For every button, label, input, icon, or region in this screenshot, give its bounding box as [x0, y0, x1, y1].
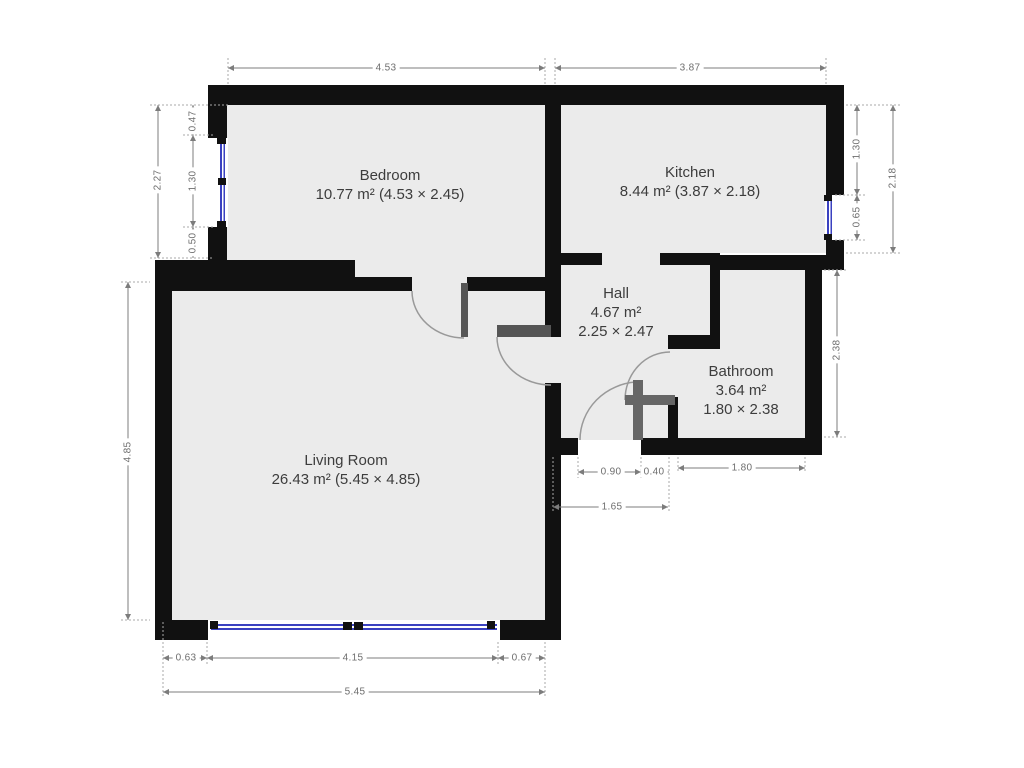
dim-label-lr-total-width: 5.45	[342, 687, 369, 698]
dim-label-bathroom-height: 2.38	[832, 337, 843, 364]
door-leaf	[461, 283, 468, 337]
doorway-gap	[668, 349, 678, 397]
dim-label-right-outer: 2.18	[888, 165, 899, 192]
wall-segment	[641, 438, 669, 455]
wall-segment	[668, 335, 720, 349]
room-label-hall: Hall 4.67 m² 2.25 × 2.47	[578, 284, 653, 341]
floor-plan: Bedroom 10.77 m² (4.53 × 2.45) Kitchen 8…	[0, 0, 1024, 768]
doorway-gap	[602, 253, 660, 265]
dim-label-left-top: 0.47	[188, 108, 199, 135]
wall-segment	[545, 383, 561, 640]
room-size: 1.80 × 2.38	[703, 400, 778, 419]
wall-segment	[155, 260, 172, 640]
room-name: Bedroom	[316, 166, 465, 185]
wall-segment	[208, 105, 227, 138]
dim-label-lr-window: 4.15	[340, 653, 367, 664]
room-size: 2.25 × 2.47	[578, 322, 653, 341]
dim-label-left-bottom: 0.50	[188, 230, 199, 257]
room-label-bathroom: Bathroom 3.64 m² 1.80 × 2.38	[703, 362, 778, 419]
room-name: Living Room	[272, 451, 421, 470]
dim-label-lr-right-offset: 0.67	[509, 653, 536, 664]
dim-label-left-window: 1.30	[188, 168, 199, 195]
wall-segment	[826, 105, 844, 195]
wall-segment	[660, 253, 710, 265]
dim-label-left-outer: 2.27	[153, 167, 164, 194]
wall-segment	[208, 227, 227, 260]
dim-label-bedroom-width: 4.53	[373, 63, 400, 74]
wall-segment	[155, 260, 355, 291]
wall-segment	[545, 105, 561, 265]
dim-label-entrance-pier: 0.40	[641, 467, 668, 478]
dim-label-entrance: 0.90	[598, 467, 625, 478]
wall-segment	[355, 277, 412, 291]
wall-segment	[826, 240, 844, 262]
door-leaf	[497, 325, 551, 337]
room-area: 10.77 m² (4.53 × 2.45)	[316, 185, 465, 204]
room-area: 4.67 m²	[578, 303, 653, 322]
wall-segment	[668, 438, 822, 455]
window	[824, 195, 844, 240]
dim-label-hall-bottom: 1.65	[599, 502, 626, 513]
room-label-living-room: Living Room 26.43 m² (5.45 × 4.85)	[272, 451, 421, 489]
wall-segment	[545, 253, 602, 265]
door-leaf	[633, 380, 643, 440]
dim-label-kitchen-width: 3.87	[677, 63, 704, 74]
window	[208, 620, 500, 642]
room-area: 3.64 m²	[703, 381, 778, 400]
wall-segment	[208, 85, 844, 105]
dim-label-right-window: 0.65	[852, 204, 863, 231]
doorway-gap	[545, 337, 561, 383]
wall-segment	[805, 270, 822, 455]
doorway-gap	[412, 277, 467, 291]
room-area: 8.44 m² (3.87 × 2.18)	[620, 182, 761, 201]
room-area: 26.43 m² (5.45 × 4.85)	[272, 470, 421, 489]
room-label-bedroom: Bedroom 10.77 m² (4.53 × 2.45)	[316, 166, 465, 204]
dim-label-bathroom-width: 1.80	[729, 463, 756, 474]
room-name: Bathroom	[703, 362, 778, 381]
room-name: Kitchen	[620, 163, 761, 182]
dim-label-right-top: 1.30	[852, 136, 863, 163]
wall-segment	[467, 277, 545, 291]
dim-label-lr-left-offset: 0.63	[173, 653, 200, 664]
window	[208, 138, 228, 227]
room-label-kitchen: Kitchen 8.44 m² (3.87 × 2.18)	[620, 163, 761, 201]
dim-label-lr-height: 4.85	[123, 439, 134, 466]
door-leaf	[625, 395, 675, 405]
wall-segment	[710, 255, 844, 270]
room-name: Hall	[578, 284, 653, 303]
